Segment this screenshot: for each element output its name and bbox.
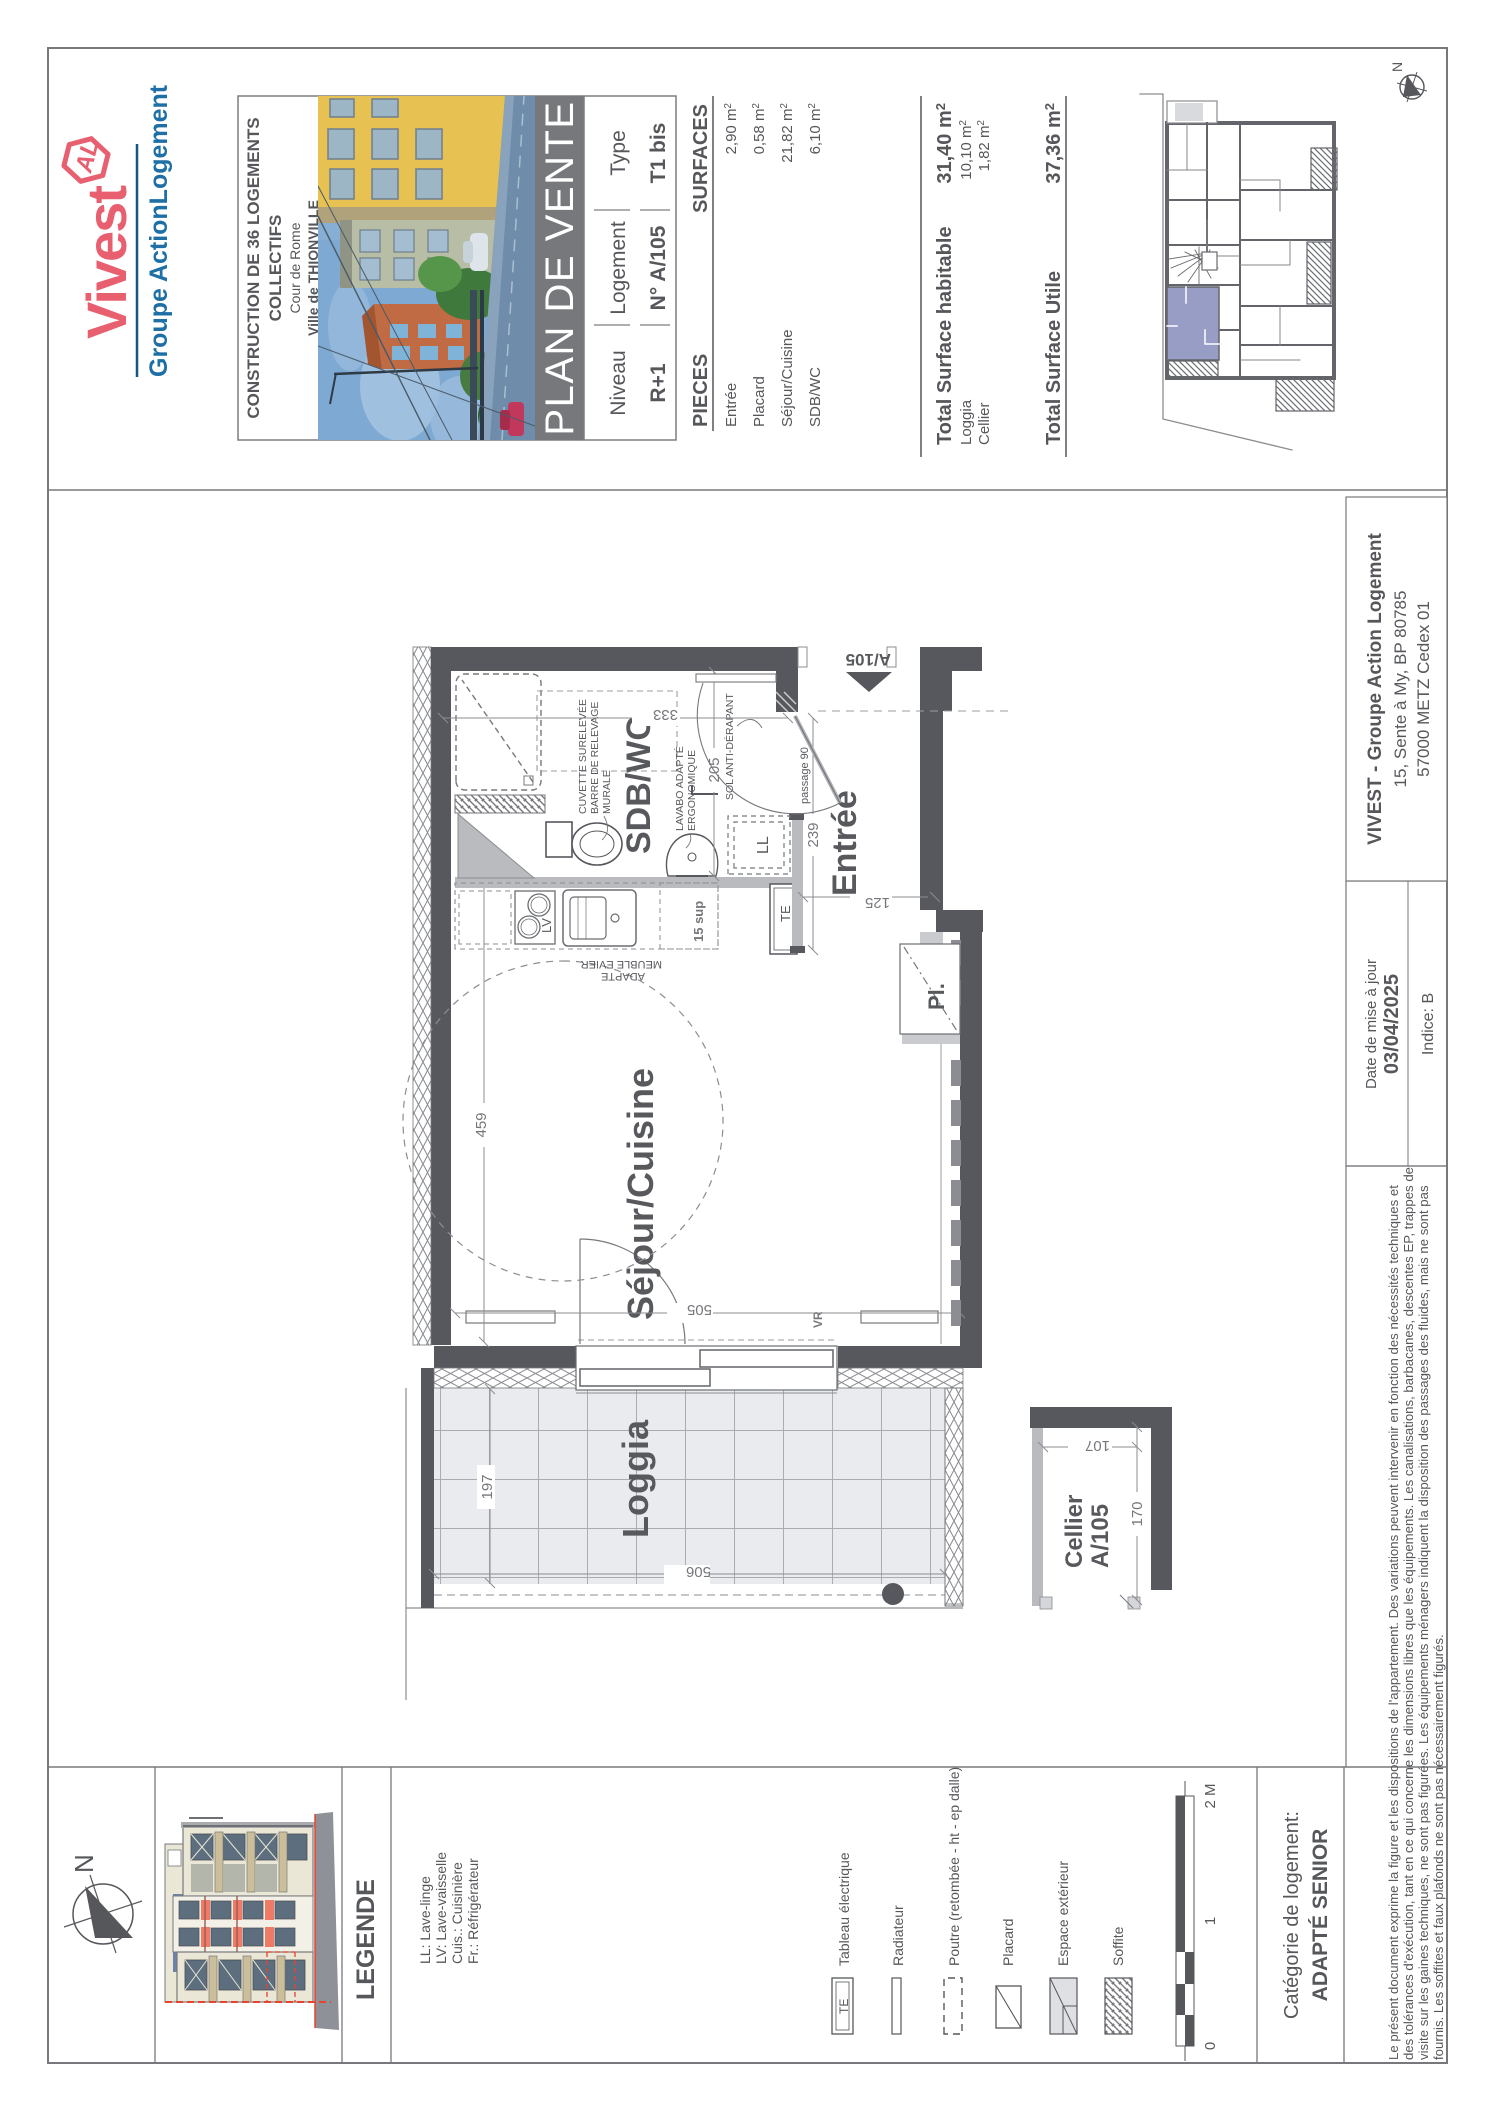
- svg-text:A/105: A/105: [846, 650, 891, 669]
- svg-text:LAVABO ADAPTÉ: LAVABO ADAPTÉ: [673, 746, 686, 831]
- svg-text:21,82 m2: 21,82 m2: [779, 103, 796, 163]
- svg-text:197: 197: [479, 1474, 496, 1499]
- svg-text:TE: TE: [778, 905, 793, 922]
- svg-text:Cuis.: Cuisinière: Cuis.: Cuisinière: [449, 1862, 465, 1964]
- svg-text:Espace extérieur: Espace extérieur: [1055, 1861, 1071, 1966]
- svg-text:2 M: 2 M: [1202, 1783, 1219, 1808]
- svg-text:Groupe ActionLogement: Groupe ActionLogement: [145, 84, 173, 377]
- svg-text:LV: Lave-vaisselle: LV: Lave-vaisselle: [433, 1852, 449, 1964]
- svg-text:T1 bis: T1 bis: [647, 123, 670, 184]
- svg-text:57000 METZ Cedex 01: 57000 METZ Cedex 01: [1414, 601, 1433, 777]
- svg-text:fournis. Les soffites et faux: fournis. Les soffites et faux plafonds n…: [1431, 1634, 1446, 2060]
- svg-text:N° A/105: N° A/105: [647, 225, 670, 310]
- svg-text:Fr.: Réfrigérateur: Fr.: Réfrigérateur: [465, 1858, 481, 1964]
- svg-text:Loggia: Loggia: [958, 399, 975, 445]
- svg-text:15 sup: 15 sup: [691, 901, 706, 942]
- svg-text:N: N: [1389, 62, 1405, 72]
- svg-text:SURFACES: SURFACES: [690, 104, 712, 213]
- svg-text:Soffite: Soffite: [1110, 1926, 1126, 1966]
- svg-text:1: 1: [1202, 1917, 1219, 1925]
- svg-text:COLLECTIFS: COLLECTIFS: [266, 215, 285, 322]
- svg-text:SDB/WC: SDB/WC: [807, 367, 824, 427]
- svg-text:125: 125: [865, 894, 890, 911]
- svg-text:PIECES: PIECES: [690, 354, 712, 427]
- svg-text:Cellier: Cellier: [1061, 1495, 1088, 1568]
- svg-text:R+1: R+1: [647, 363, 670, 402]
- svg-text:VR: VR: [811, 1311, 825, 1328]
- svg-text:Pl.: Pl.: [924, 983, 949, 1010]
- svg-text:MEUBLE EVIER: MEUBLE EVIER: [581, 958, 662, 970]
- svg-text:Entrée: Entrée: [723, 383, 740, 427]
- svg-text:Indice: B: Indice: B: [1420, 993, 1437, 1055]
- svg-text:A/105: A/105: [1087, 1504, 1114, 1568]
- svg-text:Cour de Rome: Cour de Rome: [287, 222, 303, 313]
- svg-text:Poutre (retombée - ht - ep dal: Poutre (retombée - ht - ep dalle): [946, 1767, 962, 1966]
- svg-text:Placard: Placard: [1000, 1919, 1016, 1966]
- svg-text:Logement: Logement: [607, 221, 630, 315]
- svg-text:Date de mise à jour: Date de mise à jour: [1363, 959, 1380, 1089]
- svg-text:2,90 m2: 2,90 m2: [723, 103, 740, 155]
- svg-text:ADAPTE: ADAPTE: [601, 970, 645, 982]
- svg-text:506: 506: [686, 1563, 711, 1580]
- svg-text:Loggia: Loggia: [615, 1419, 656, 1538]
- svg-text:Vivest: Vivest: [75, 186, 138, 339]
- svg-text:333: 333: [653, 706, 678, 723]
- svg-text:Total Surface Utile: Total Surface Utile: [1043, 271, 1065, 445]
- svg-text:ERGONOMIQUE: ERGONOMIQUE: [686, 750, 698, 831]
- svg-text:0: 0: [1202, 2042, 1219, 2050]
- svg-text:LL: LL: [755, 836, 772, 854]
- svg-text:Radiateur: Radiateur: [890, 1905, 906, 1966]
- svg-text:Placard: Placard: [751, 376, 768, 427]
- svg-text:ADAPTÉ SENIOR: ADAPTÉ SENIOR: [1309, 1829, 1332, 2002]
- svg-text:CONSTRUCTION DE 36 LOGEMENTS: CONSTRUCTION DE 36 LOGEMENTS: [244, 117, 263, 418]
- svg-text:239: 239: [805, 822, 822, 847]
- svg-text:Séjour/Cuisine: Séjour/Cuisine: [779, 329, 796, 427]
- svg-text:1,82 m2: 1,82 m2: [976, 120, 993, 172]
- svg-text:6,10 m2: 6,10 m2: [807, 103, 824, 155]
- svg-text:LL: Lave-linge: LL: Lave-linge: [417, 1876, 433, 1964]
- svg-text:des tolérances d'exécution, ta: des tolérances d'exécution, tant en ce q…: [1401, 1167, 1416, 2060]
- svg-text:Catégorie de logement:: Catégorie de logement:: [1281, 1811, 1303, 2019]
- svg-text:Type: Type: [607, 130, 630, 176]
- svg-text:Le présent document exprime la: Le présent document exprime la figure et…: [1386, 1185, 1401, 2060]
- svg-text:VIVEST - Groupe Action Logemen: VIVEST - Groupe Action Logement: [1365, 532, 1386, 844]
- svg-text:TE: TE: [837, 1999, 851, 2014]
- svg-text:31,40 m2: 31,40 m2: [933, 103, 956, 184]
- svg-text:0,58 m2: 0,58 m2: [751, 103, 768, 155]
- svg-text:SDB/WC: SDB/WC: [620, 716, 658, 854]
- svg-text:03/04/2025: 03/04/2025: [1381, 974, 1403, 1074]
- svg-text:LV: LV: [539, 918, 554, 933]
- svg-text:459: 459: [473, 1112, 490, 1137]
- svg-text:10,10 m2: 10,10 m2: [958, 120, 975, 180]
- svg-text:37,36 m2: 37,36 m2: [1042, 103, 1065, 184]
- svg-text:Séjour/Cuisine: Séjour/Cuisine: [620, 1068, 661, 1320]
- svg-text:N: N: [69, 1854, 99, 1873]
- svg-text:Total Surface habitable: Total Surface habitable: [934, 226, 956, 445]
- svg-text:visite sur les gaines techniqu: visite sur les gaines techniques, ne son…: [1416, 1185, 1431, 2060]
- svg-text:Entrée: Entrée: [826, 790, 864, 896]
- svg-text:PLAN DE VENTE: PLAN DE VENTE: [538, 100, 582, 435]
- svg-text:CUVETTE SURELEVÉE: CUVETTE SURELEVÉE: [576, 699, 589, 814]
- svg-text:15, Sente à My, BP 80785: 15, Sente à My, BP 80785: [1391, 591, 1410, 788]
- svg-text:MURALE: MURALE: [601, 770, 613, 814]
- svg-text:Cellier: Cellier: [976, 402, 993, 445]
- svg-text:170: 170: [1129, 1501, 1146, 1526]
- svg-text:Tableau électrique: Tableau électrique: [836, 1852, 852, 1966]
- svg-text:107: 107: [1085, 1437, 1110, 1454]
- svg-text:LEGENDE: LEGENDE: [352, 1879, 380, 2000]
- svg-text:Niveau: Niveau: [607, 350, 630, 415]
- svg-text:505: 505: [687, 1301, 712, 1318]
- svg-text:passage 90: passage 90: [799, 747, 811, 804]
